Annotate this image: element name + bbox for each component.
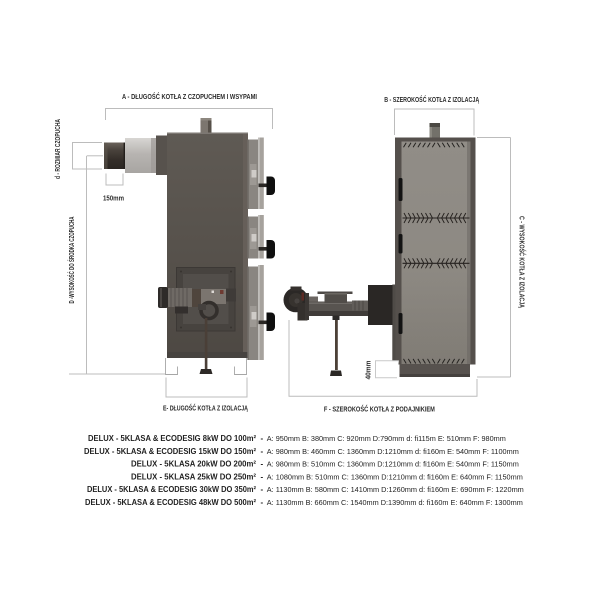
svg-text:-: - [260,434,263,443]
svg-text:-: - [260,472,263,481]
svg-text:DELUX - 5KLASA & ECODESIG 8k: DELUX - 5KLASA & ECODESIG 8kW DO 100m² [88,434,256,443]
svg-text:-: - [260,485,263,494]
svg-text:F - SZEROKOŚĆ KOTŁA Z PODAJNIK: F - SZEROKOŚĆ KOTŁA Z PODAJNIKIEM [324,405,435,414]
svg-text:A: 1080mm B: 510mm C: 1360mm: A: 1080mm B: 510mm C: 1360mm D:1210mm d:… [267,472,523,481]
svg-text:DELUX - 5KLASA & ECODESIG 30: DELUX - 5KLASA & ECODESIG 30kW DO 350m² [87,485,256,494]
svg-text:DELUX - 5KLASA 20kW DO 200m²: DELUX - 5KLASA 20kW DO 200m² [131,460,256,469]
svg-text:DELUX - 5KLASA & ECODESIG 48: DELUX - 5KLASA & ECODESIG 48kW DO 500m² [85,498,256,507]
svg-text:40mm: 40mm [366,361,373,380]
svg-text:-: - [260,498,263,507]
svg-text:DELUX - 5KLASA & ECODESIG 15: DELUX - 5KLASA & ECODESIG 15kW DO 150m² [84,447,256,456]
svg-text:A: 1130mm B: 660mm C: 1540mm: A: 1130mm B: 660mm C: 1540mm D:1390mm d:… [267,498,523,507]
svg-text:d - ROZMIAR CZOPUCHA: d - ROZMIAR CZOPUCHA [53,119,62,179]
svg-text:-: - [260,447,263,456]
svg-text:150mm: 150mm [103,196,124,203]
svg-text:A: 980mm B: 460mm C: 1360mm: A: 980mm B: 460mm C: 1360mm D:1210mm d: … [267,447,519,456]
svg-text:D -WYSOKOŚĆ DO ŚRODKA CZOPUCHA: D -WYSOKOŚĆ DO ŚRODKA CZOPUCHA [67,216,76,303]
svg-text:-: - [260,460,263,469]
svg-text:C - WYSOKOŚĆ KOTŁA Z IZOLACJĄ: C - WYSOKOŚĆ KOTŁA Z IZOLACJĄ [518,216,527,308]
svg-text:A: 980mm B: 510mm C: 1360mm: A: 980mm B: 510mm C: 1360mm D:1210mm d: … [267,460,519,469]
svg-text:E- DŁUGOŚĆ KOTŁA Z IZOLACJĄ: E- DŁUGOŚĆ KOTŁA Z IZOLACJĄ [163,404,248,413]
svg-text:DELUX - 5KLASA 25kW DO 250m²: DELUX - 5KLASA 25kW DO 250m² [131,472,256,481]
svg-text:A: 1130mm B: 580mm C: 1410mm: A: 1130mm B: 580mm C: 1410mm D:1260mm d:… [267,485,524,494]
svg-text:B - SZEROKOŚĆ KOTŁA Z IZOLACJĄ: B - SZEROKOŚĆ KOTŁA Z IZOLACJĄ [384,95,479,104]
svg-text:A: 950mm B: 380mm C: 920mm: A: 950mm B: 380mm C: 920mm D:790mm d: fi… [267,434,506,443]
svg-text:A - DŁUGOŚĆ KOTŁA Z CZOPUCHEM: A - DŁUGOŚĆ KOTŁA Z CZOPUCHEM I WSYPAMI [122,92,257,101]
